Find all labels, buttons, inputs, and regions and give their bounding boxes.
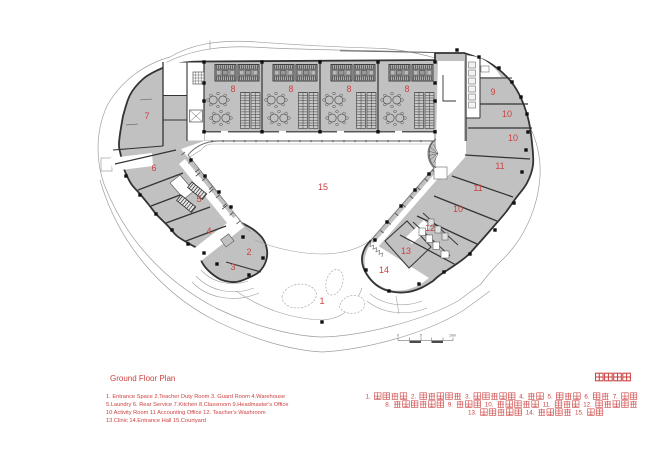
svg-text:14: 14 — [379, 265, 389, 275]
svg-text:13.Clinic 14.Entrance Hall 15.: 13.Clinic 14.Entrance Hall 15.Courtyard — [106, 418, 206, 424]
svg-text:10: 10 — [502, 109, 512, 119]
svg-text:1. Entrance Space 2.Teacher Du: 1. Entrance Space 2.Teacher Duty Room 3.… — [106, 394, 285, 400]
svg-text:6: 6 — [151, 163, 156, 173]
svg-text:3: 3 — [230, 262, 235, 272]
svg-text:8: 8 — [288, 84, 293, 94]
svg-text:1: 1 — [319, 296, 324, 306]
svg-text:11: 11 — [473, 183, 482, 193]
svg-text:7.: 7. — [613, 394, 618, 401]
svg-text:5: 5 — [196, 194, 201, 204]
svg-text:12.: 12. — [583, 402, 592, 409]
svg-text:5: 5 — [420, 334, 422, 338]
svg-text:10: 10 — [508, 133, 518, 143]
svg-text:11.: 11. — [543, 402, 551, 409]
svg-text:7: 7 — [144, 111, 149, 121]
svg-text:10m: 10m — [449, 334, 456, 338]
svg-text:4.: 4. — [519, 394, 524, 401]
svg-text:6.: 6. — [584, 394, 589, 401]
svg-text:0: 0 — [397, 334, 399, 338]
svg-text:8.: 8. — [385, 402, 390, 409]
svg-text:2: 2 — [246, 247, 251, 257]
svg-text:Ground Floor Plan: Ground Floor Plan — [110, 374, 175, 383]
svg-text:5.Laundry 6. Rear Service 7.Ki: 5.Laundry 6. Rear Service 7.Kitchen 8.Cl… — [106, 402, 288, 408]
svg-text:10 Activity Room 11 Accounting: 10 Activity Room 11 Accounting Office 12… — [106, 410, 266, 416]
svg-text:5.: 5. — [548, 394, 553, 401]
svg-text:2.: 2. — [411, 394, 416, 401]
svg-text:4: 4 — [206, 226, 211, 236]
svg-text:13.: 13. — [468, 410, 477, 417]
svg-text:15.: 15. — [575, 410, 584, 417]
svg-text:13: 13 — [401, 246, 411, 256]
svg-text:12: 12 — [425, 223, 435, 233]
svg-text:8: 8 — [346, 84, 351, 94]
svg-text:9: 9 — [490, 87, 495, 97]
svg-text:10.: 10. — [485, 402, 494, 409]
svg-text:15: 15 — [318, 182, 328, 192]
svg-text:8: 8 — [404, 84, 409, 94]
svg-text:3.: 3. — [465, 394, 470, 401]
svg-text:10: 10 — [453, 204, 463, 214]
svg-text:14.: 14. — [526, 410, 535, 417]
svg-text:1.: 1. — [366, 394, 371, 401]
svg-text:8: 8 — [230, 84, 235, 94]
svg-text:11: 11 — [495, 161, 504, 171]
svg-text:9.: 9. — [448, 402, 453, 409]
